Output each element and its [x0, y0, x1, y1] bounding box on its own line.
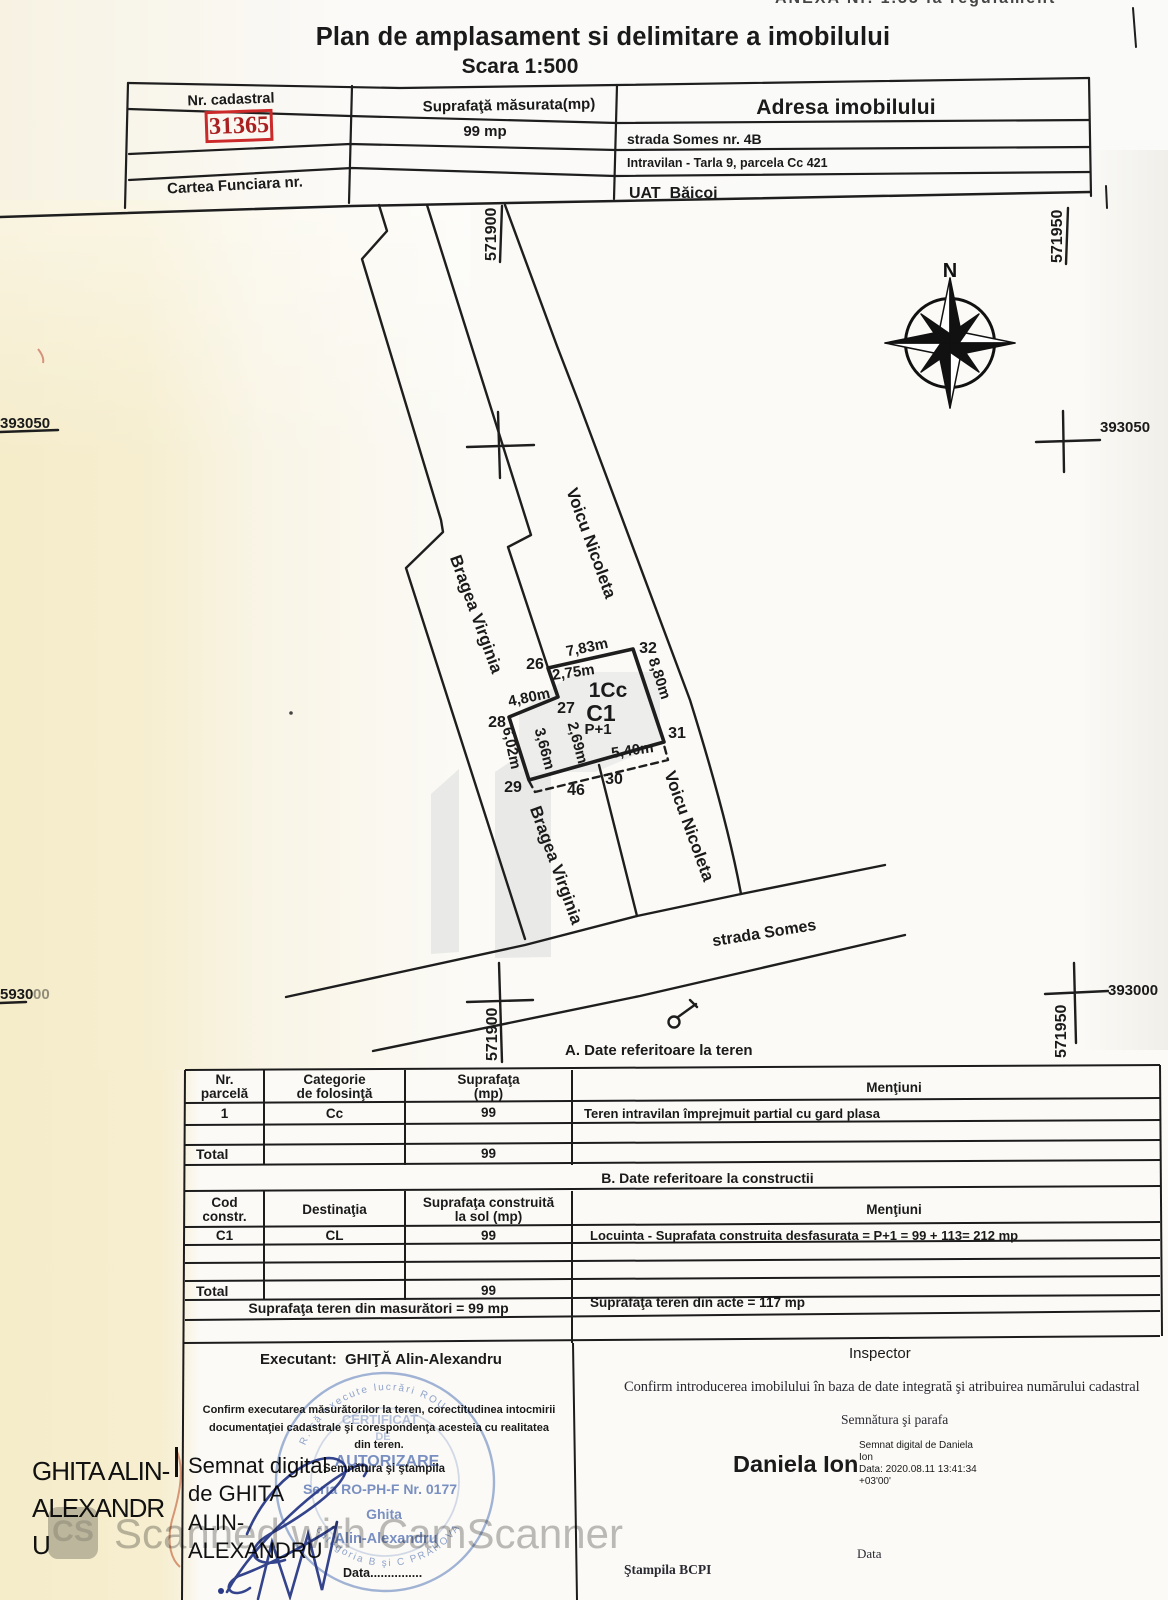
- svg-text:571900: 571900: [484, 1008, 501, 1061]
- svg-text:2,69m: 2,69m: [564, 720, 591, 765]
- svg-text:32: 32: [639, 640, 657, 657]
- svg-text:26: 26: [526, 656, 544, 673]
- svg-text:4,80m: 4,80m: [506, 685, 551, 710]
- svg-text:571900: 571900: [483, 208, 500, 261]
- svg-text:393050: 393050: [0, 415, 50, 432]
- svg-text:30: 30: [605, 771, 623, 788]
- svg-text:29: 29: [504, 779, 522, 796]
- svg-text:571950: 571950: [1053, 1005, 1070, 1058]
- svg-text:8,80m: 8,80m: [645, 656, 674, 702]
- svg-text:5930: 5930: [0, 986, 33, 1003]
- svg-text:571950: 571950: [1049, 210, 1066, 263]
- svg-text:31: 31: [668, 725, 686, 742]
- svg-text:27: 27: [557, 700, 575, 717]
- svg-text:strada Somes: strada Somes: [711, 917, 817, 950]
- svg-text:P+1: P+1: [584, 721, 611, 738]
- svg-text:3,66m: 3,66m: [531, 726, 558, 771]
- svg-text:2,75m: 2,75m: [551, 661, 595, 684]
- svg-text:Voicu Nicoleta: Voicu Nicoleta: [660, 768, 718, 884]
- svg-text:N: N: [943, 260, 957, 282]
- svg-text:5,40m: 5,40m: [610, 739, 654, 762]
- svg-text:46: 46: [567, 782, 585, 799]
- svg-text:1Cc: 1Cc: [589, 679, 628, 702]
- svg-text:Bragea Virginia: Bragea Virginia: [446, 552, 507, 676]
- svg-text:393000: 393000: [1108, 982, 1158, 999]
- svg-text:Bragea Virginia: Bragea Virginia: [526, 803, 587, 927]
- svg-text:28: 28: [488, 714, 506, 731]
- svg-text:C1: C1: [586, 700, 616, 726]
- svg-text:00: 00: [33, 986, 50, 1003]
- svg-text:6,02m: 6,02m: [499, 725, 524, 770]
- svg-text:7,83m: 7,83m: [564, 635, 609, 660]
- svg-text:393050: 393050: [1100, 419, 1150, 436]
- svg-text:Voicu Nicoleta: Voicu Nicoleta: [562, 485, 620, 601]
